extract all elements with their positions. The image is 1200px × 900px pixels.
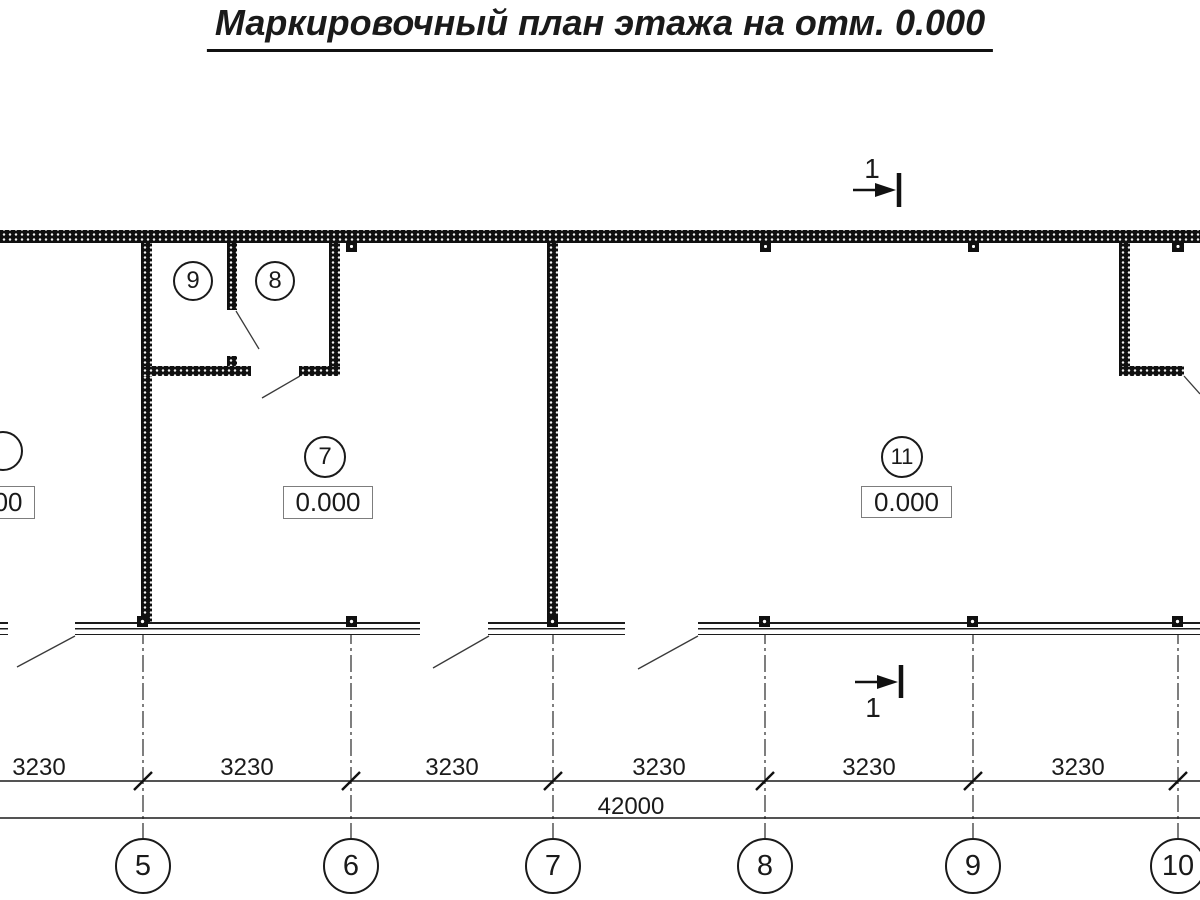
- axis-bubble-10: 10: [1150, 838, 1200, 894]
- axis-node-9: [967, 616, 978, 627]
- wall-axis7-vertical: [547, 243, 558, 622]
- axis-stub-6: [346, 243, 357, 252]
- section-label-bottom: 1: [865, 692, 881, 724]
- wall-partition-9-8: [227, 243, 237, 310]
- room-bubble-8: 8: [255, 261, 295, 301]
- opening-leader-3: [638, 636, 698, 669]
- wall-room9-bottom: [141, 366, 251, 376]
- axis-node-10: [1172, 616, 1183, 627]
- room-number-9: 9: [186, 267, 199, 295]
- level-box-room7: 0.000: [283, 486, 373, 519]
- axis-stub-8: [760, 243, 771, 252]
- wall-exterior-top: [0, 230, 1200, 243]
- level-box-room11: 0.000: [861, 486, 952, 518]
- room-number-11: 11: [891, 444, 914, 470]
- door-swing-right: [1184, 376, 1200, 394]
- room-bubble-11: 11: [881, 436, 923, 478]
- axis-bubble-8: 8: [737, 838, 793, 894]
- axis-node-7: [547, 616, 558, 627]
- door-swings: [17, 311, 1200, 669]
- room-number-7: 7: [318, 443, 331, 471]
- axis-stub-9: [968, 243, 979, 252]
- wall-axis5-vertical: [141, 243, 152, 622]
- axis-bubble-6: 6: [323, 838, 379, 894]
- axis-label-9: 9: [965, 850, 981, 883]
- axis-label-7: 7: [545, 850, 561, 883]
- window-band-left-cut: [0, 622, 8, 635]
- axis-bubble-5: 5: [115, 838, 171, 894]
- axis-bubble-7: 7: [525, 838, 581, 894]
- opening-leader-2: [433, 636, 489, 668]
- wall-room8-bottom: [299, 366, 340, 376]
- section-label-top: 1: [864, 153, 880, 185]
- wall-right-vertical: [1119, 243, 1130, 375]
- door-swing-room8: [262, 376, 300, 398]
- dim-label-total: 42000: [598, 793, 665, 821]
- dim-label-bay-6: 3230: [1051, 754, 1104, 782]
- axis-bubble-9: 9: [945, 838, 1001, 894]
- level-box-left-cut: 0.000: [0, 486, 35, 519]
- level-value-left-cut: 0.000: [0, 487, 23, 518]
- wall-room8-right: [329, 243, 340, 376]
- dim-label-bay-5: 3230: [842, 754, 895, 782]
- level-value-room7: 0.000: [295, 487, 360, 518]
- floor-plan-sheet: Маркировочный план этажа на отм. 0.000: [0, 0, 1200, 900]
- section-arrowhead-bottom: [877, 675, 898, 689]
- window-band-a: [75, 622, 420, 635]
- axis-node-5: [137, 616, 148, 627]
- axis-label-6: 6: [343, 850, 359, 883]
- room-number-8: 8: [268, 267, 281, 295]
- door-swing-room9: [236, 311, 259, 349]
- dim-label-bay-3: 3230: [425, 754, 478, 782]
- axis-label-10: 10: [1162, 850, 1194, 883]
- wall-right-return: [1119, 366, 1184, 376]
- level-value-room11: 0.000: [874, 487, 939, 518]
- axis-stub-10: [1172, 243, 1184, 252]
- axis-node-8: [759, 616, 770, 627]
- section-arrowhead-top: [875, 183, 896, 197]
- room-bubble-9: 9: [173, 261, 213, 301]
- room-bubble-7: 7: [304, 436, 346, 478]
- dim-label-bay-1: 3230: [12, 754, 65, 782]
- opening-leader-1: [17, 636, 75, 667]
- axis-label-5: 5: [135, 850, 151, 883]
- axis-node-6: [346, 616, 357, 627]
- window-band-c: [698, 622, 1200, 635]
- wall-room9-stub: [227, 356, 237, 366]
- dim-label-bay-2: 3230: [220, 754, 273, 782]
- drawing-linework: [0, 0, 1200, 900]
- axis-label-8: 8: [757, 850, 773, 883]
- dim-label-bay-4: 3230: [632, 754, 685, 782]
